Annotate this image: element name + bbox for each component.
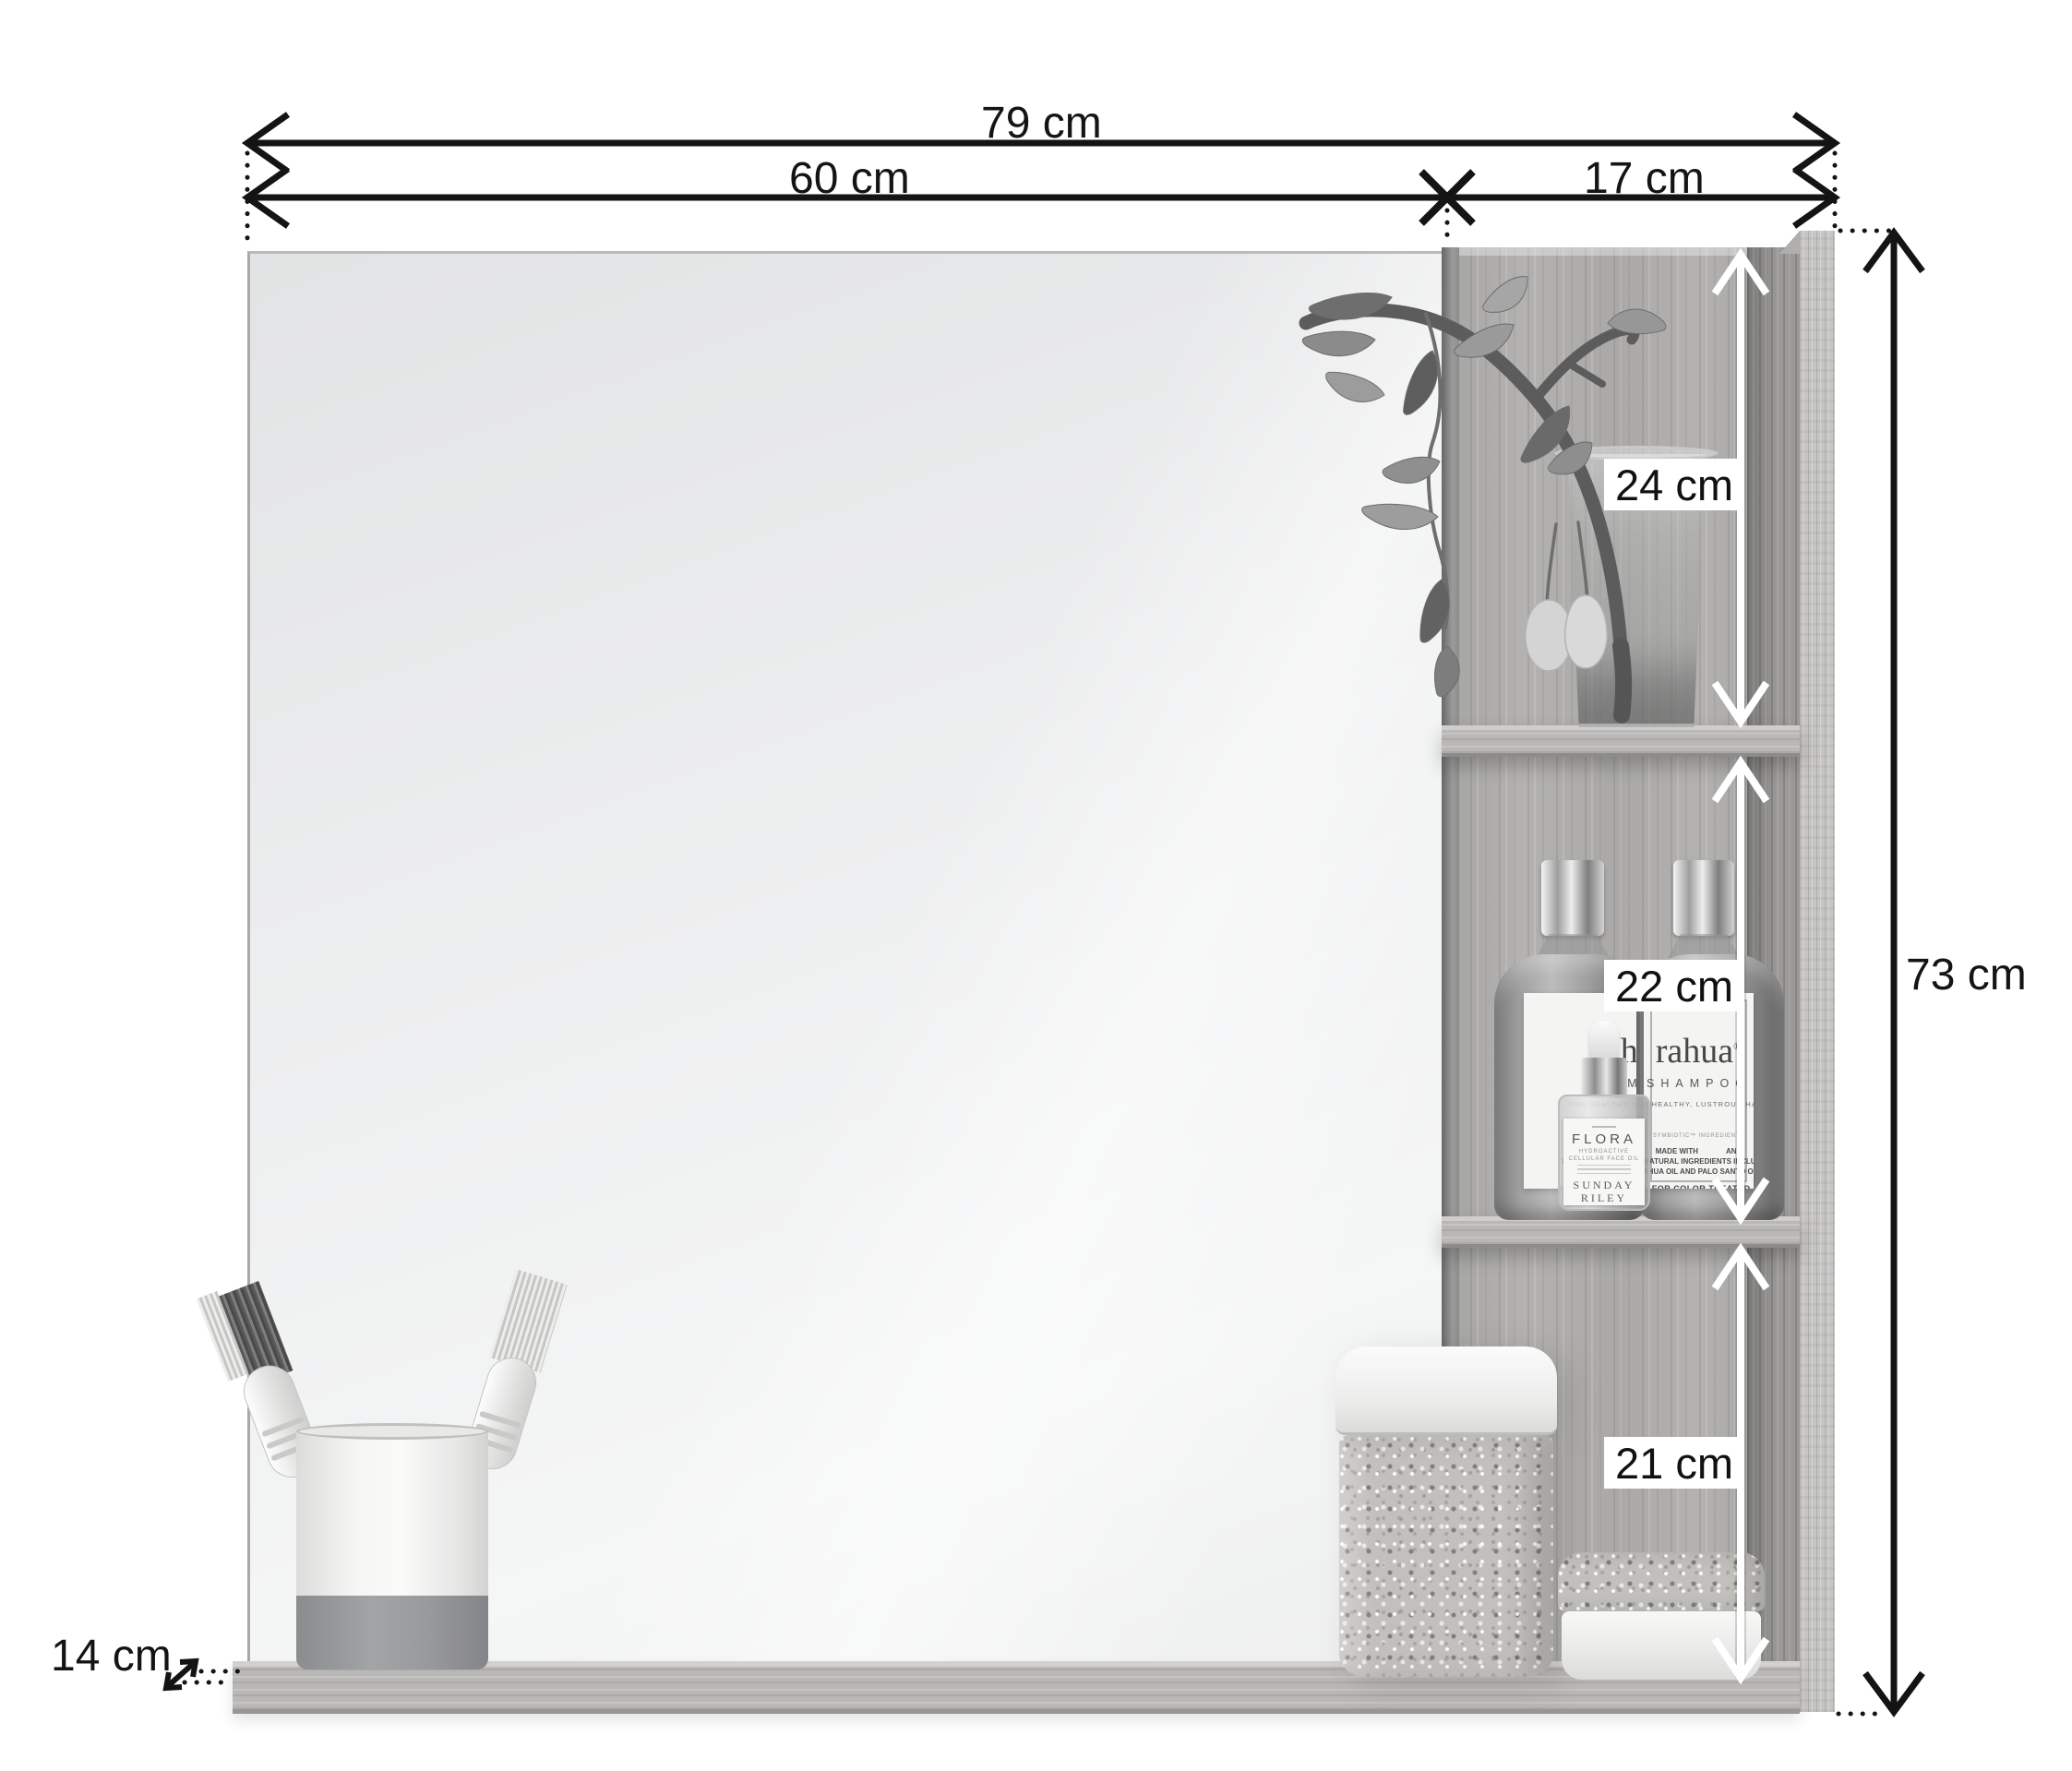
dimension-arrows-black xyxy=(0,0,2072,1771)
product-dimension-diagram: rahua® SHAMPOO FOR HEALTHY, LUSTROUS HAI… xyxy=(0,0,2072,1771)
dim-label-total-height: 73 cm xyxy=(1906,950,2027,1000)
dim-label-total-width: 79 cm xyxy=(981,98,1102,149)
dotted-guides xyxy=(185,153,1890,1714)
dim-label-shelf-width: 17 cm xyxy=(1584,153,1705,204)
dim-label-depth: 14 cm xyxy=(51,1631,172,1681)
dim-label-mirror-width: 60 cm xyxy=(789,153,910,204)
